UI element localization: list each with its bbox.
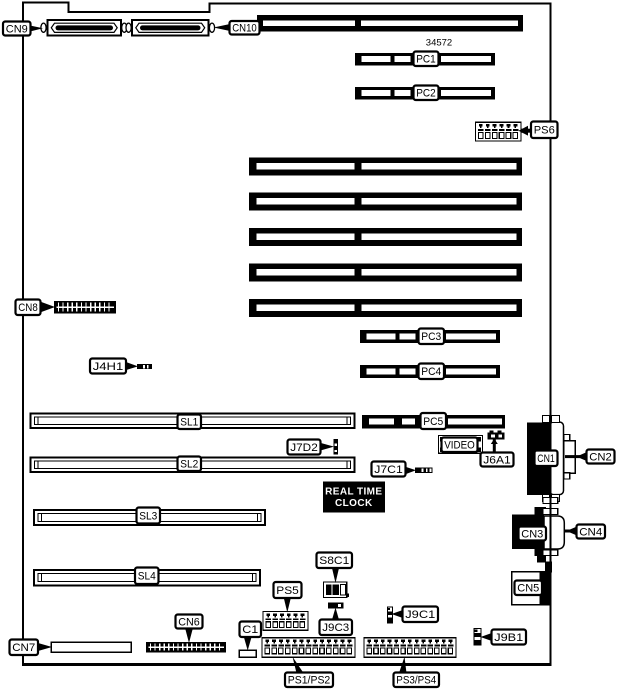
svg-text:J7C1: J7C1 bbox=[374, 464, 403, 476]
svg-text:SL2: SL2 bbox=[180, 459, 198, 471]
svg-text:PS3/PS4: PS3/PS4 bbox=[396, 675, 436, 687]
svg-text:CN8: CN8 bbox=[18, 302, 38, 314]
svg-text:PS5: PS5 bbox=[276, 585, 299, 597]
svg-text:SL3: SL3 bbox=[139, 510, 157, 522]
svg-text:J7D2: J7D2 bbox=[290, 442, 318, 454]
svg-text:SL1: SL1 bbox=[180, 417, 198, 429]
svg-text:VIDEO: VIDEO bbox=[444, 440, 475, 452]
svg-text:CN3: CN3 bbox=[521, 528, 543, 540]
svg-text:PC2: PC2 bbox=[416, 88, 436, 100]
svg-text:CN1: CN1 bbox=[537, 453, 555, 465]
svg-text:PC4: PC4 bbox=[421, 366, 441, 378]
svg-text:CN7: CN7 bbox=[12, 642, 35, 654]
svg-text:PC3: PC3 bbox=[421, 331, 441, 343]
svg-text:J4H1: J4H1 bbox=[93, 361, 124, 373]
svg-text:PS1/PS2: PS1/PS2 bbox=[288, 675, 331, 687]
svg-text:PC1: PC1 bbox=[416, 54, 436, 66]
svg-text:CN5: CN5 bbox=[517, 583, 539, 595]
svg-text:CN2: CN2 bbox=[589, 451, 612, 463]
svg-text:SL4: SL4 bbox=[138, 571, 156, 583]
svg-text:CN10: CN10 bbox=[232, 23, 257, 35]
svg-text:C1: C1 bbox=[242, 624, 258, 636]
svg-text:J9C3: J9C3 bbox=[322, 622, 349, 634]
svg-text:J6A1: J6A1 bbox=[483, 454, 511, 466]
svg-text:PS6: PS6 bbox=[534, 125, 555, 137]
svg-text:CN6: CN6 bbox=[178, 616, 200, 628]
svg-text:PC5: PC5 bbox=[423, 416, 443, 428]
svg-text:CLOCK: CLOCK bbox=[335, 498, 373, 509]
svg-text:J9C1: J9C1 bbox=[405, 609, 435, 621]
svg-text:J9B1: J9B1 bbox=[494, 632, 523, 644]
svg-text:CN4: CN4 bbox=[579, 526, 602, 538]
svg-text:CN9: CN9 bbox=[6, 23, 28, 35]
svg-text:REAL TIME: REAL TIME bbox=[325, 487, 382, 498]
svg-text:34572: 34572 bbox=[426, 38, 452, 49]
svg-text:S8C1: S8C1 bbox=[319, 555, 349, 567]
